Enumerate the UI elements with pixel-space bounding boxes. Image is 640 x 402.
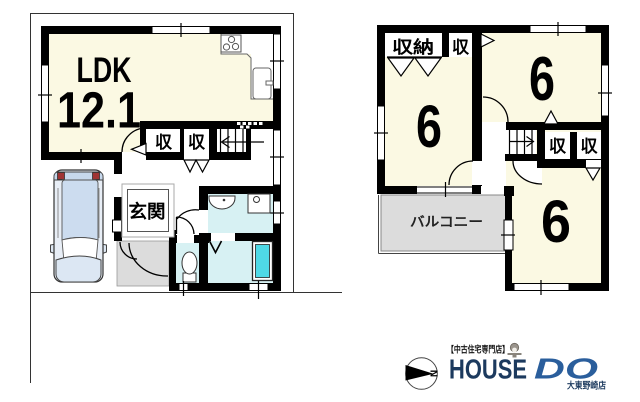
svg-text:6: 6 (541, 188, 571, 255)
svg-text:12.1: 12.1 (57, 82, 141, 139)
svg-text:6: 6 (529, 45, 555, 114)
svg-text:収納: 収納 (392, 37, 434, 57)
svg-text:HOUSE: HOUSE (449, 354, 527, 385)
svg-text:バルコニー: バルコニー (410, 215, 483, 230)
svg-text:玄関: 玄関 (128, 201, 165, 222)
svg-text:大東野崎店: 大東野崎店 (567, 380, 606, 391)
svg-text:6: 6 (416, 93, 442, 160)
svg-text:収: 収 (155, 133, 173, 152)
svg-text:収: 収 (452, 38, 470, 57)
svg-text:N: N (427, 370, 438, 377)
svg-text:収: 収 (188, 133, 206, 152)
svg-text:収: 収 (549, 137, 567, 156)
svg-text:収: 収 (581, 137, 599, 156)
